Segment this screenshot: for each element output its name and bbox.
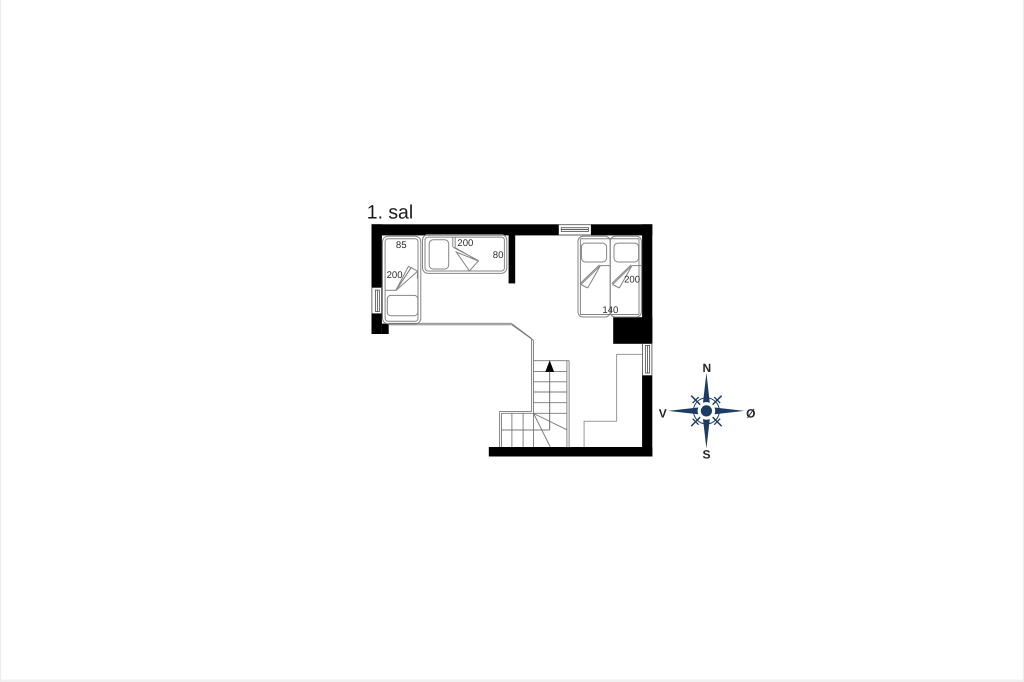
svg-text:200: 200 — [387, 270, 403, 281]
svg-text:85: 85 — [396, 240, 407, 251]
svg-text:140: 140 — [602, 305, 618, 316]
svg-text:V: V — [659, 406, 667, 420]
svg-text:80: 80 — [493, 250, 504, 261]
svg-text:200: 200 — [457, 238, 473, 249]
svg-text:S: S — [702, 447, 710, 461]
svg-text:N: N — [702, 361, 711, 375]
svg-text:1. sal: 1. sal — [367, 201, 413, 223]
svg-text:200: 200 — [624, 274, 640, 285]
svg-text:Ø: Ø — [746, 407, 755, 421]
